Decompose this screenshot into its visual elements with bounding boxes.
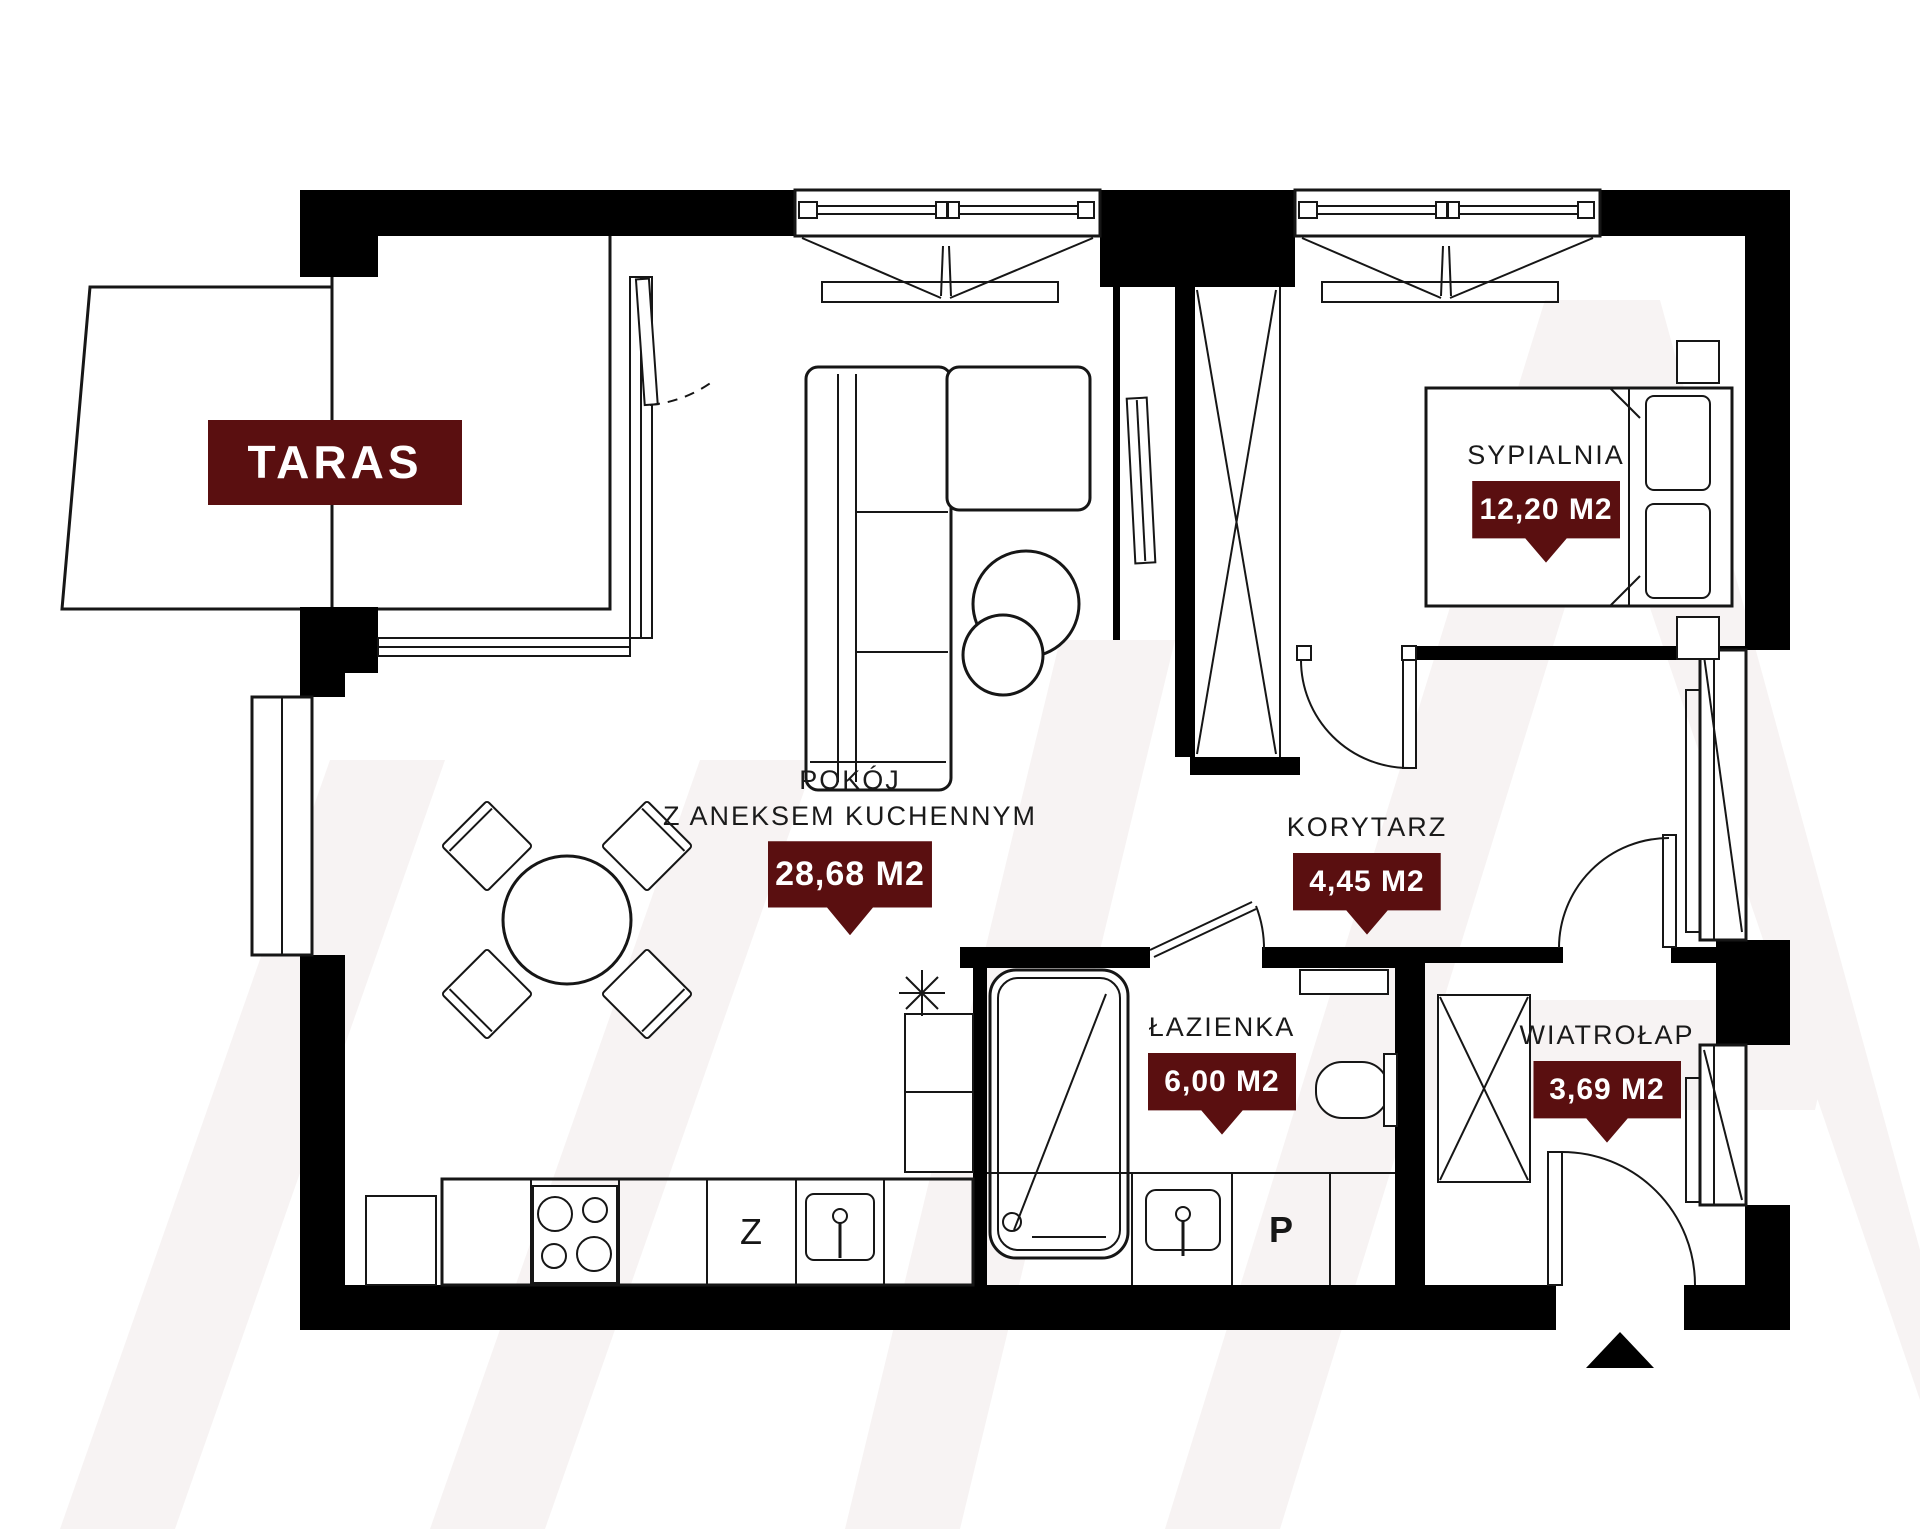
stove-icon — [533, 1186, 617, 1283]
floor-plan: Z P TARAS P — [0, 0, 1920, 1529]
dining-table — [503, 856, 631, 984]
living-room-name: POKÓJ Z ANEKSEM KUCHENNYM — [663, 763, 1037, 834]
kitchen-tall-cabinets — [905, 1014, 973, 1172]
washer-label: P — [1269, 1209, 1293, 1250]
living-room-label: POKÓJ Z ANEKSEM KUCHENNYM 28,68 M2 — [663, 763, 1037, 935]
corridor-label: KORYTARZ 4,45 M2 — [1287, 810, 1448, 935]
terrace-low-window — [378, 638, 630, 656]
bathroom-label: ŁAZIENKA 6,00 M2 — [1148, 1010, 1296, 1135]
nightstand — [1677, 341, 1719, 383]
washbasin-icon — [1146, 1190, 1220, 1256]
toilet-icon — [1316, 1054, 1397, 1126]
kitchen-sink-icon — [806, 1194, 874, 1260]
bathroom-shelf — [1300, 970, 1388, 994]
terrace-label: TARAS — [208, 420, 462, 505]
bathroom-area-badge: 6,00 M2 — [1148, 1053, 1296, 1135]
bedroom-name: SYPIALNIA — [1467, 438, 1625, 474]
vestibule-wardrobe — [1438, 995, 1530, 1182]
dishwasher-label: Z — [740, 1211, 762, 1252]
corridor-area-badge: 4,45 M2 — [1293, 853, 1441, 935]
bathroom-name: ŁAZIENKA — [1149, 1010, 1296, 1046]
bedroom-label: SYPIALNIA 12,20 M2 — [1467, 438, 1625, 563]
vestibule-area-badge: 3,69 M2 — [1533, 1061, 1681, 1143]
corridor-name: KORYTARZ — [1287, 810, 1448, 846]
vestibule-name: WIATROŁAP — [1519, 1018, 1694, 1054]
left-wall-window — [252, 697, 312, 955]
living-room-area-badge: 28,68 M2 — [768, 841, 932, 935]
bedroom-area-badge: 12,20 M2 — [1472, 481, 1620, 563]
nightstand — [1677, 617, 1719, 659]
vestibule-label: WIATROŁAP 3,69 M2 — [1519, 1018, 1694, 1143]
bathtub-icon — [990, 970, 1128, 1258]
